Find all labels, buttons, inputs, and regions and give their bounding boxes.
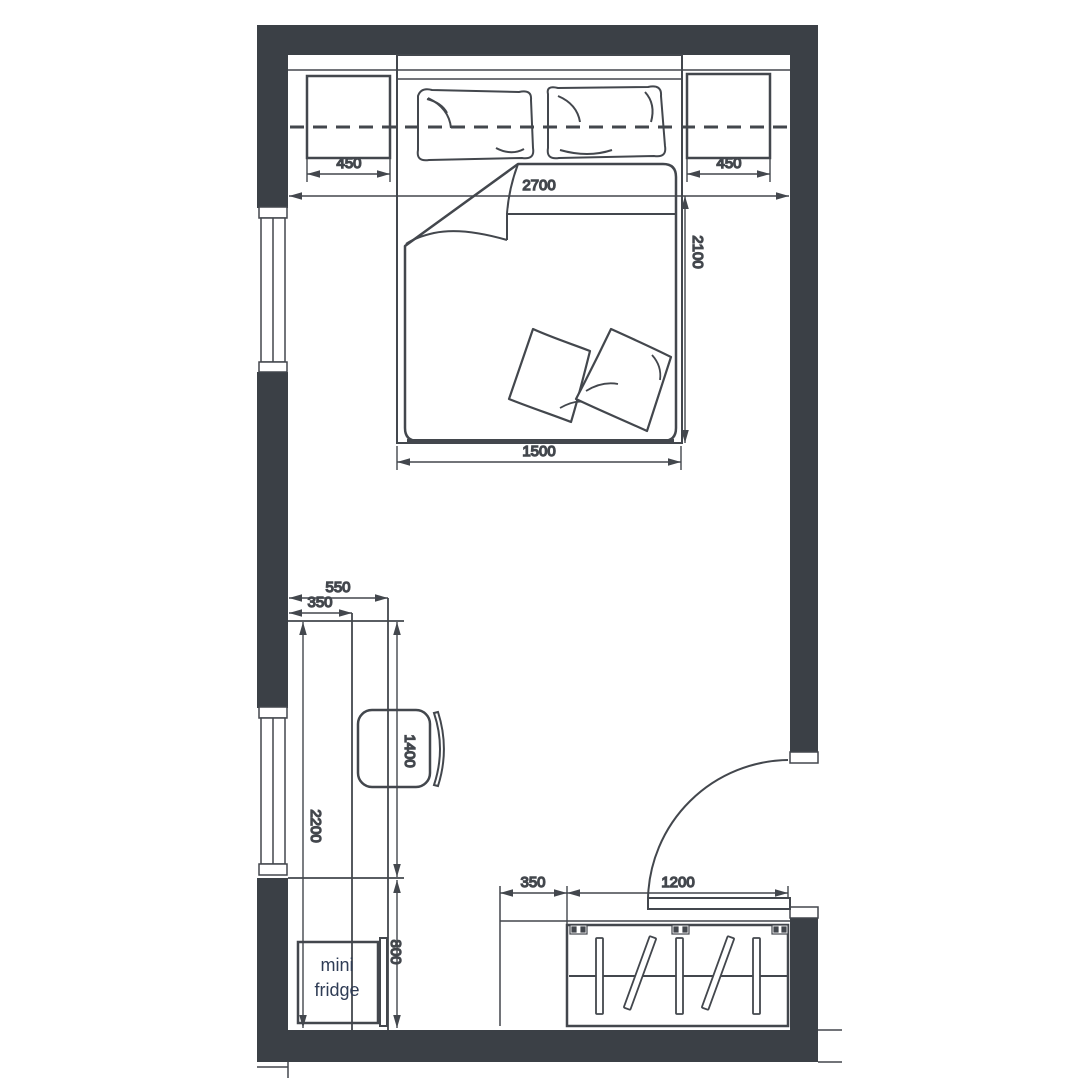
wall-end-cap-lower <box>790 907 818 918</box>
wall-end-cap-upper <box>790 752 818 763</box>
dim-label: 350 <box>520 874 545 891</box>
window-sill <box>259 362 287 372</box>
dim-label: 1500 <box>522 443 555 460</box>
window-sill <box>259 864 287 875</box>
fridge-label-line1: mini <box>320 955 353 975</box>
dim-desk-zone-depth: 550 <box>289 579 388 598</box>
dim-label: 450 <box>716 155 741 172</box>
dim-label: 350 <box>307 594 332 611</box>
dim-bed-length: 2100 <box>685 196 706 443</box>
wall-left-middle <box>257 372 288 708</box>
door-leaf <box>648 898 790 909</box>
dim-label: 1200 <box>661 874 694 891</box>
wall-right-lower <box>790 918 818 1030</box>
dim-label: 450 <box>336 155 361 172</box>
nightstand-left <box>307 76 390 158</box>
chair-backrest <box>434 712 444 786</box>
dim-fridge-nook: 800 <box>387 880 404 1028</box>
nightstand-right <box>687 74 770 158</box>
dim-wardrobe-width: 1200 <box>567 874 788 897</box>
dim-label: 2200 <box>307 809 324 842</box>
window-sill <box>259 207 287 218</box>
window-upper <box>259 207 287 372</box>
hanger-bar <box>753 938 760 1014</box>
floor-plan-drawing: mini fridge 450 <box>0 0 1081 1081</box>
dim-bed-width: 1500 <box>397 443 681 470</box>
dim-desk-depth: 350 <box>289 594 352 613</box>
hanger-bar <box>596 938 603 1014</box>
wall-right-upper <box>790 25 818 752</box>
dim-label: 1400 <box>401 734 418 767</box>
dim-wardrobe-side: 350 <box>500 874 567 924</box>
wall-top <box>257 25 818 55</box>
wall-bottom <box>257 1030 818 1062</box>
dim-label: 2100 <box>689 235 706 268</box>
window-lower <box>259 707 287 875</box>
fridge-label-line2: fridge <box>314 980 359 1000</box>
window-sill <box>259 707 287 718</box>
desk-chair <box>358 710 430 787</box>
dim-room-width: 2700 <box>289 177 789 196</box>
mini-fridge-door <box>380 938 387 1026</box>
dim-label: 800 <box>387 939 404 964</box>
dim-label: 2700 <box>522 177 555 194</box>
head-pillow-right <box>548 86 666 158</box>
bedroom-floor-plan: mini fridge 450 <box>0 0 1081 1081</box>
hanger-bar <box>676 938 683 1014</box>
head-pillow-left <box>418 89 534 160</box>
wall-left-upper <box>257 25 288 208</box>
